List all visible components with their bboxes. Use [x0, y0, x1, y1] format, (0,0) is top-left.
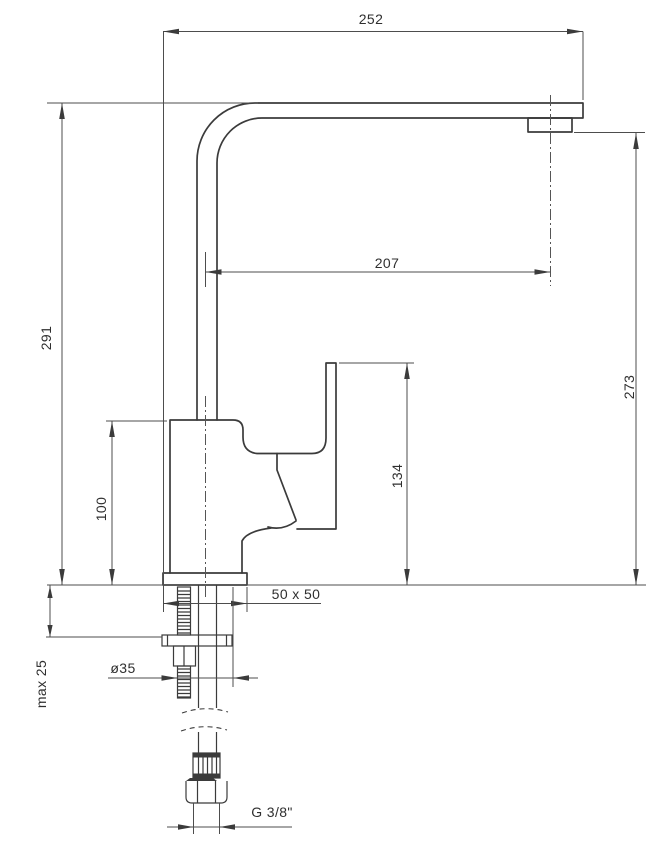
cartridge-bottom-arc	[268, 521, 296, 528]
arrowhead	[162, 675, 178, 681]
arrowhead	[109, 421, 115, 437]
centerlines	[206, 95, 551, 600]
arrowhead	[535, 269, 551, 275]
dim-label-lever-height: 134	[390, 464, 404, 489]
rod-thread-hatch-lower	[178, 669, 190, 697]
crimp-ribs	[199, 758, 217, 774]
arrowhead	[233, 675, 249, 681]
dim-label-outlet-height: 273	[622, 375, 636, 400]
arrowhead	[404, 569, 410, 585]
hex-nut-outline	[186, 781, 227, 803]
arrowhead	[47, 625, 52, 637]
crimp-band-top	[193, 753, 220, 758]
supply-hose-lines	[199, 585, 217, 753]
arrowhead	[59, 569, 65, 585]
arrowhead	[47, 586, 52, 598]
dim-label-spout-width: 252	[359, 12, 384, 26]
under-counter-hardware	[162, 585, 232, 803]
dim-label-deck-thickness: max 25	[34, 660, 48, 708]
washer-end-caps	[168, 635, 227, 646]
dim-label-height-total: 291	[39, 326, 53, 351]
hex-nut-top-band	[186, 778, 217, 781]
arrowhead	[206, 269, 222, 275]
arrowhead	[220, 824, 236, 829]
arrowhead	[109, 569, 115, 585]
rod-thread-hatch-upper	[178, 591, 190, 633]
arrowhead	[163, 601, 179, 607]
arrowhead	[59, 103, 65, 119]
arrowhead	[404, 363, 410, 379]
cartridge-slant-line	[277, 454, 296, 521]
technical-drawing-canvas: 252 207 291 273 134 100 50 x 50 ø35 max …	[0, 0, 672, 841]
arrowhead	[633, 133, 639, 149]
dim-label-thread: G 3/8"	[251, 805, 293, 819]
dim-label-base-size: 50 x 50	[272, 587, 321, 601]
break-line-upper	[182, 709, 228, 713]
faucet-outline	[163, 103, 583, 585]
body-step-outline	[242, 528, 271, 573]
break-line-lower	[181, 727, 227, 731]
arrowhead	[633, 569, 639, 585]
dimension-lines	[46, 29, 645, 834]
body-and-lever-outline	[170, 363, 336, 573]
dim-label-spout-reach: 207	[375, 256, 400, 270]
arrowhead	[567, 29, 583, 35]
arrowhead	[163, 29, 179, 35]
arrowhead	[178, 824, 194, 829]
crimp-band-bottom	[193, 774, 220, 779]
hex-nut-facets	[198, 781, 216, 803]
dim-label-body-height: 100	[94, 497, 108, 522]
dim-label-hole-diameter: ø35	[110, 661, 135, 675]
faucet-drawing-svg	[0, 0, 672, 841]
mounting-washer	[162, 635, 232, 646]
